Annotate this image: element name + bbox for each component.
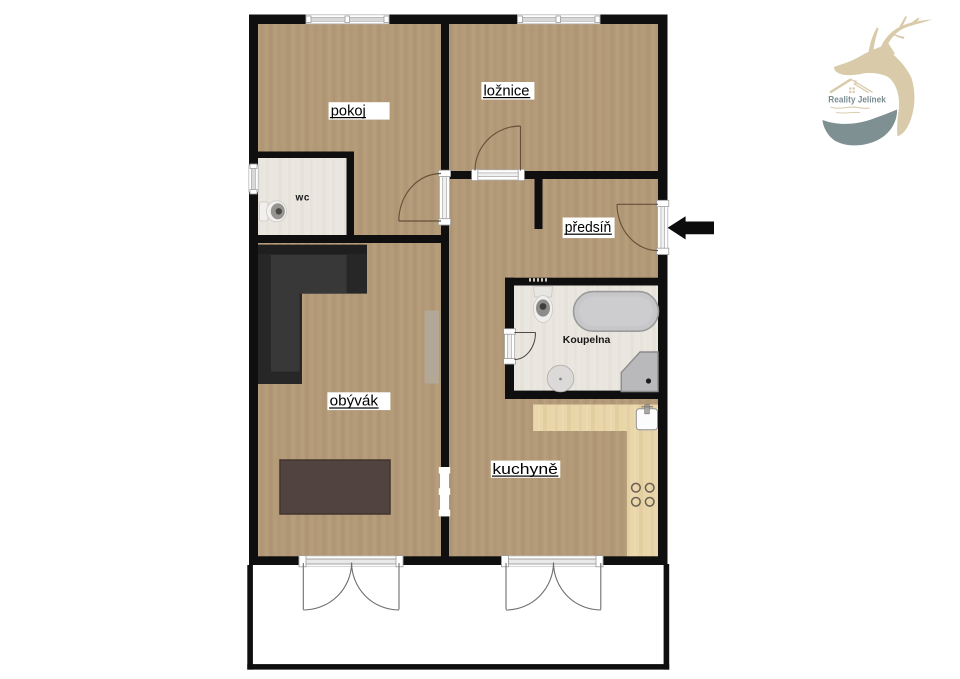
- svg-text:kuchyně: kuchyně: [492, 462, 558, 478]
- svg-text:Reality Jelínek: Reality Jelínek: [828, 95, 886, 106]
- svg-text:předsíň: předsíň: [565, 220, 612, 236]
- svg-text:obývák: obývák: [330, 394, 379, 410]
- svg-text:ložnice: ložnice: [484, 83, 530, 99]
- svg-text:wc: wc: [295, 193, 311, 204]
- svg-text:pokoj: pokoj: [331, 103, 366, 119]
- svg-text:Koupelna: Koupelna: [563, 334, 611, 346]
